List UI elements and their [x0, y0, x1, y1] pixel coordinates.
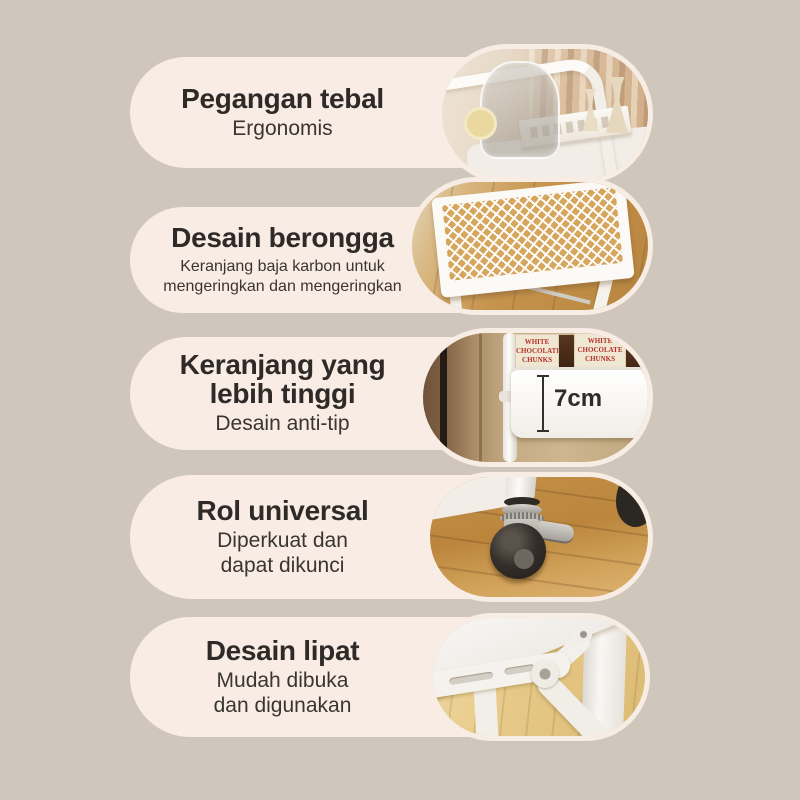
hinge-screw: [575, 626, 592, 643]
feature-title: Pegangan tebal: [181, 84, 384, 113]
hinge-joint: [531, 660, 559, 688]
feature-title: Rol universal: [197, 496, 369, 525]
product-feature-infographic: Pegangan tebal Ergonomis Desain berongga…: [0, 0, 800, 800]
measurement-line-icon: [542, 375, 544, 432]
glass-pitcher: [480, 61, 560, 159]
feature-subtitle: Keranjang baja karbon untuk mengeringkan…: [163, 257, 401, 297]
cart-leg-left: [474, 683, 499, 740]
wall-gap-shadow: [440, 333, 447, 462]
dimension-label: 7cm: [554, 385, 602, 413]
mesh-basket: [431, 178, 634, 298]
feature-title: Desain berongga: [171, 223, 394, 252]
handle-with-glassware-photo: [437, 44, 653, 184]
cart-leg: [504, 472, 537, 500]
wheel-hub: [514, 549, 534, 569]
mesh-basket-photo: [407, 177, 653, 315]
feature-subtitle: Mudah dibuka dan digunakan: [214, 669, 352, 719]
feature-subtitle: Diperkuat dan dapat dikunci: [217, 529, 348, 579]
lemon-slice: [464, 107, 497, 140]
caster-wheel-photo: [425, 472, 653, 602]
tall-basket-photo: WHITE CHOCOLATE CHUNKS WHITE CHOCOLATE C…: [418, 328, 653, 467]
wall-plank-line: [479, 333, 482, 462]
folding-mechanism-photo: [428, 613, 650, 741]
feature-title: Keranjang yang lebih tinggi: [180, 350, 386, 408]
feature-title: Desain lipat: [206, 636, 360, 665]
feature-subtitle: Ergonomis: [232, 117, 332, 142]
arm-slot: [449, 671, 494, 685]
feature-card: Pegangan tebal Ergonomis: [130, 57, 480, 168]
feature-subtitle: Desain anti-tip: [215, 412, 349, 437]
diamond-mesh-surface: [442, 187, 623, 281]
